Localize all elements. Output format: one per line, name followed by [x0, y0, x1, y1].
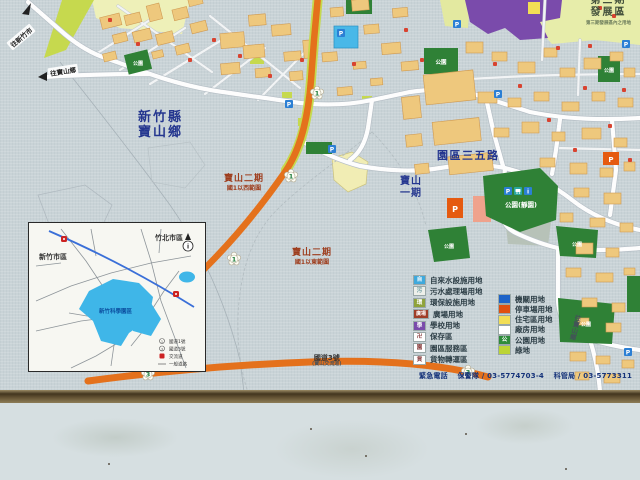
legend-right-column: 機關用地 停車場用地 住宅區用地 廠房用地 公 公園用地 綠地 [498, 295, 553, 357]
inset-legend: 1 3 國道1號 國道3號 交流道 一般道路 [158, 338, 187, 368]
svg-text:一般道路: 一般道路 [169, 361, 187, 368]
residential-swatch [498, 315, 511, 325]
factory-swatch [498, 325, 511, 335]
svg-text:國道3號: 國道3號 [169, 346, 186, 353]
svg-text:i: i [527, 189, 529, 196]
inset-zhubei-label: 竹北市區 [154, 233, 183, 242]
map-board: P P P P P P P P P [0, 0, 640, 392]
inset-hsinchu-label: 新竹市區 [39, 252, 67, 261]
svg-text:公園: 公園 [435, 58, 447, 66]
svg-text:P: P [339, 31, 344, 38]
legend-item-school: 學 學校用地 [413, 322, 483, 330]
inset-science-park-area [79, 272, 195, 347]
sewage-swatch: 污 [413, 286, 426, 296]
legend-item-institution: 機關用地 [498, 295, 553, 303]
water-supply-swatch: 自 [413, 275, 426, 285]
institution-swatch [498, 294, 511, 304]
park-swatch: 公 [498, 335, 511, 345]
parking-swatch [498, 304, 511, 314]
svg-text:公園: 公園 [581, 321, 591, 328]
svg-text:1: 1 [315, 89, 320, 97]
emergency-phone-line: 緊急電話 保警隊 / 03-5774703-4 科管局 / 03-5773311 [419, 371, 639, 381]
inset-science-park-label: 新竹科學園區 [99, 307, 133, 315]
svg-text:P: P [496, 92, 501, 99]
board-bottom-frame [0, 390, 640, 403]
svg-text:國道1號: 國道1號 [169, 338, 186, 345]
svg-text:1: 1 [289, 172, 294, 180]
plaza-swatch: 廣場 [413, 309, 429, 319]
svg-text:P: P [626, 350, 631, 357]
legend-item-environment: 環 環保設施用地 [413, 299, 483, 307]
svg-text:P: P [455, 22, 460, 29]
svg-text:P: P [624, 42, 629, 49]
svg-text:公園: 公園 [133, 60, 143, 67]
legend-item-water-supply: 自 自來水設施用地 [413, 276, 483, 284]
inset-compass: i [183, 233, 193, 251]
cargo-swatch: 貨 [413, 355, 426, 365]
green-space-swatch [498, 345, 511, 355]
svg-text:P: P [608, 156, 613, 164]
svg-text:P: P [287, 102, 292, 109]
inset-lake [179, 272, 195, 283]
svg-text:公園: 公園 [572, 241, 582, 248]
legend-item-preservation: 卍 保存區 [413, 333, 483, 341]
park-service-swatch: 園 [413, 343, 426, 353]
legend-item-residential: 住宅區用地 [498, 316, 553, 324]
map-board-photo: P P P P P P P P P [0, 0, 640, 480]
preservation-swatch: 卍 [413, 332, 426, 342]
baoshan-phase2-west-label: 寶山二期 國1以西範圍 [224, 174, 264, 192]
svg-text:公園(靜園): 公園(靜園) [505, 200, 537, 209]
police-phone: 保警隊 / 03-5774703-4 [457, 372, 544, 380]
school-swatch: 學 [413, 321, 426, 331]
legend-item-green-space: 綠地 [498, 346, 553, 354]
svg-text:1: 1 [232, 255, 237, 263]
emergency-title: 緊急電話 [419, 372, 448, 380]
park-road-35-label: 園區三五路 [437, 150, 500, 163]
highway3-name-label: 國道3號 (寶山交流道) [312, 354, 342, 368]
inset-overview-map: i 竹北市區 新竹市區 新竹科學園區 1 3 國道1號 國道3號 交流道 [28, 222, 206, 372]
legend-item-sewage: 污 污水處理場用地 [413, 287, 483, 295]
svg-text:P: P [452, 205, 458, 214]
legend-item-plaza: 廣場 廣場用地 [413, 310, 483, 318]
svg-text:P: P [330, 147, 335, 154]
jingyuan-park-icon-row: P i [504, 187, 532, 196]
svg-text:1: 1 [161, 340, 163, 344]
svg-text:P: P [506, 189, 511, 196]
legend-item-factory: 廠房用地 [498, 326, 553, 334]
svg-text:交流道: 交流道 [169, 353, 183, 360]
legend-left-column: 自 自來水設施用地 污 污水處理場用地 環 環保設施用地 廣場 廣場用地 學 學… [413, 276, 483, 367]
environment-swatch: 環 [413, 298, 426, 308]
legend-item-cargo: 貨 貨物轉運區 [413, 356, 483, 364]
svg-text:3: 3 [161, 348, 163, 352]
legend-item-parking: 停車場用地 [498, 305, 553, 313]
svg-text:i: i [187, 244, 189, 251]
county-township-label: 新竹縣 寶山鄉 [138, 110, 183, 141]
legend-item-park-service: 園 園區服務區 [413, 344, 483, 352]
svg-text:公園: 公園 [604, 67, 614, 74]
concrete-wall [0, 403, 640, 480]
bureau-phone: 科管局 / 03-5773311 [554, 372, 632, 380]
baoshan-phase1-label: 寶山 一期 [400, 176, 422, 200]
baoshan-phase2-east-label: 寶山二期 國1以東範圍 [292, 248, 332, 266]
phase3-development-label: 第三期 發展區 第三期發展區內之用地 [586, 0, 631, 26]
legend-item-park: 公 公園用地 [498, 336, 553, 344]
svg-text:公園: 公園 [444, 243, 454, 250]
